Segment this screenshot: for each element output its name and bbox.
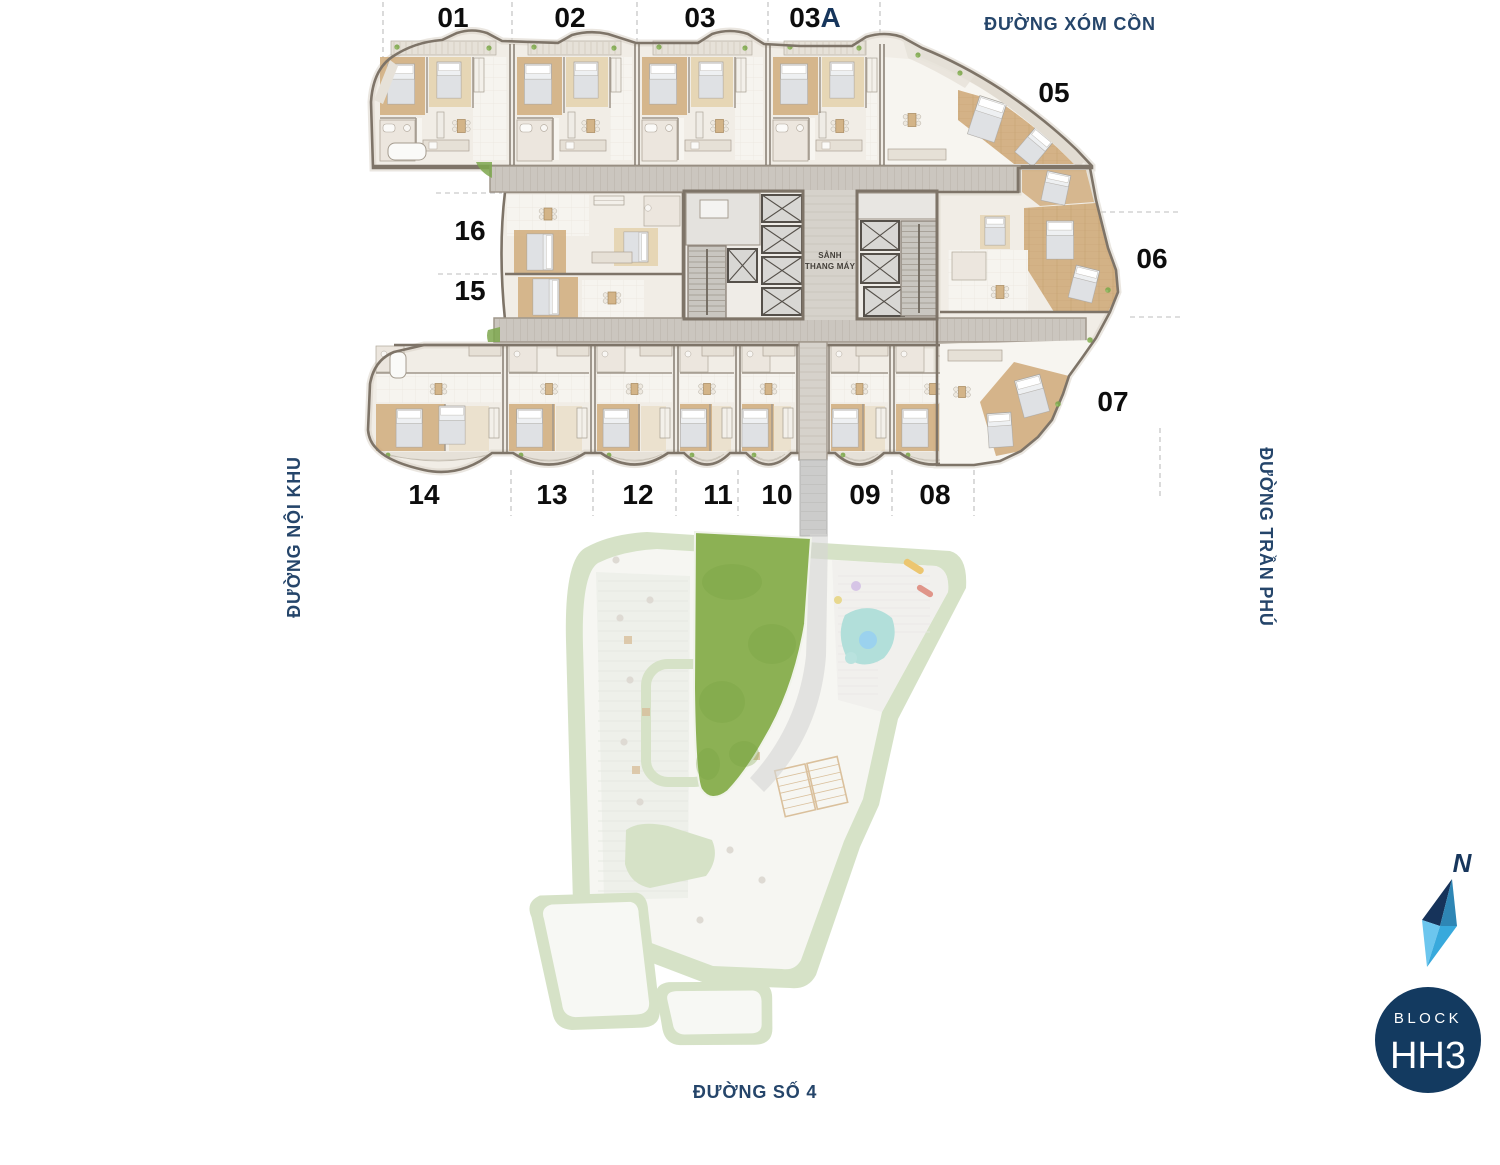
svg-text:ĐƯỜNG SỐ 4: ĐƯỜNG SỐ 4 xyxy=(693,1081,817,1102)
svg-text:BLOCK: BLOCK xyxy=(1394,1010,1462,1027)
svg-text:N: N xyxy=(1453,848,1473,878)
svg-text:11: 11 xyxy=(703,479,733,510)
svg-text:HH3: HH3 xyxy=(1390,1035,1466,1077)
svg-text:13: 13 xyxy=(536,479,567,510)
svg-text:01: 01 xyxy=(437,2,468,33)
svg-text:12: 12 xyxy=(622,479,653,510)
svg-text:03: 03 xyxy=(684,2,715,33)
svg-text:03A: 03A xyxy=(789,2,840,33)
svg-text:THANG MÁY: THANG MÁY xyxy=(805,262,856,271)
svg-text:07: 07 xyxy=(1097,386,1128,417)
svg-text:15: 15 xyxy=(454,275,485,306)
svg-text:08: 08 xyxy=(919,479,950,510)
svg-text:02: 02 xyxy=(554,2,585,33)
svg-text:16: 16 xyxy=(454,215,485,246)
svg-text:ĐƯỜNG XÓM CỒN: ĐƯỜNG XÓM CỒN xyxy=(984,13,1156,34)
svg-text:ĐƯỜNG TRẦN PHÚ: ĐƯỜNG TRẦN PHÚ xyxy=(1256,447,1277,626)
svg-text:09: 09 xyxy=(849,479,880,510)
svg-text:05: 05 xyxy=(1038,77,1069,108)
svg-text:14: 14 xyxy=(408,479,440,510)
svg-text:ĐƯỜNG NỘI KHU: ĐƯỜNG NỘI KHU xyxy=(283,456,304,618)
svg-text:10: 10 xyxy=(761,479,792,510)
svg-text:06: 06 xyxy=(1136,243,1167,274)
svg-text:SẢNH: SẢNH xyxy=(818,251,841,260)
